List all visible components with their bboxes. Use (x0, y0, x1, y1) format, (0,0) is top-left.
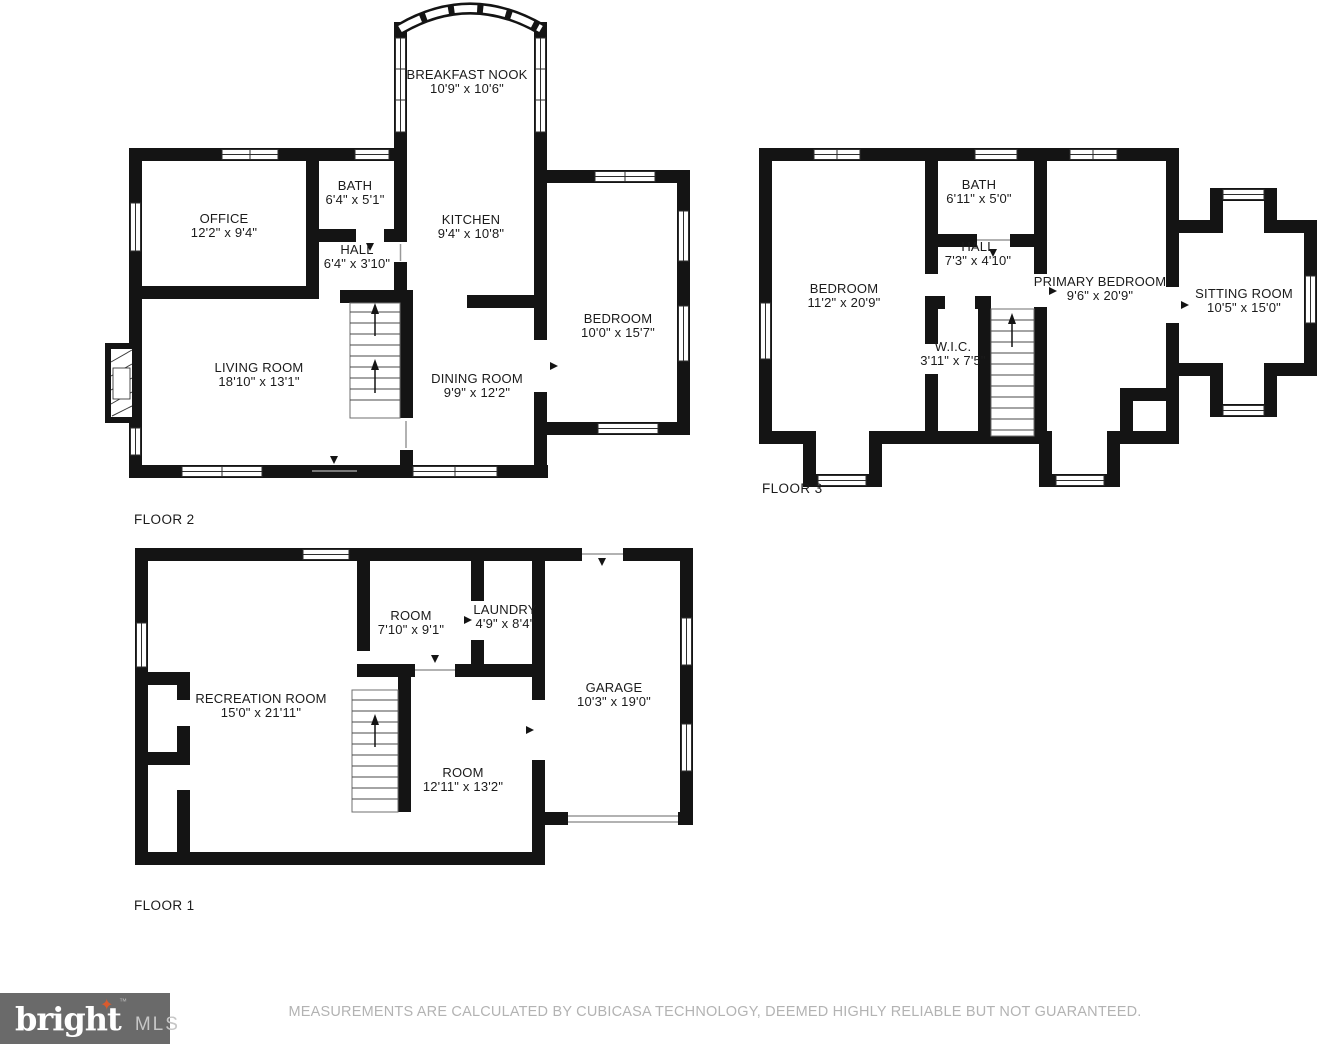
room-dims: 10'3" x 19'0" (577, 695, 651, 709)
room-name: KITCHEN (438, 213, 504, 227)
room-label-sitting-room: SITTING ROOM 10'5" x 15'0" (1195, 287, 1293, 314)
room-label-laundry: LAUNDRY 4'9" x 8'4" (473, 603, 536, 630)
room-label-bath-f2: BATH 6'4" x 5'1" (325, 179, 384, 206)
room-label-hall-f3: HALL 7'3" x 4'10" (945, 240, 1011, 267)
room-label-bath-f3: BATH 6'11" x 5'0" (946, 178, 1012, 205)
room-name: ROOM (378, 609, 444, 623)
floor1-stairs (352, 690, 398, 812)
room-name: RECREATION ROOM (195, 692, 326, 706)
room-name: BEDROOM (808, 282, 881, 296)
trademark-symbol: ™ (119, 997, 127, 1006)
room-dims: 9'9" x 12'2" (431, 386, 523, 400)
room-dims: 15'0" x 21'11" (195, 706, 326, 720)
floor2-stairs (350, 303, 400, 418)
room-dims: 12'11" x 13'2" (423, 780, 503, 794)
room-label-office: OFFICE 12'2" x 9'4" (191, 212, 257, 239)
floor3-stairs (991, 309, 1034, 436)
room-label-wic: W.I.C. 3'11" x 7'5" (920, 340, 986, 367)
room-name: DINING ROOM (431, 372, 523, 386)
room-label-bedroom-f2: BEDROOM 10'0" x 15'7" (581, 312, 655, 339)
room-label-kitchen: KITCHEN 9'4" x 10'8" (438, 213, 504, 240)
room-dims: 3'11" x 7'5" (920, 354, 986, 368)
floor2-caption: FLOOR 2 (134, 512, 195, 527)
room-label-living-room: LIVING ROOM 18'10" x 13'1" (215, 361, 304, 388)
room-label-room-lower: ROOM 12'11" x 13'2" (423, 766, 503, 793)
room-name: BATH (946, 178, 1012, 192)
room-dims: 6'11" x 5'0" (946, 192, 1012, 206)
brightmls-logo: bright ✦ ™ MLS (0, 993, 170, 1044)
floor2-door-openings (312, 243, 558, 471)
room-name: BEDROOM (581, 312, 655, 326)
room-dims: 9'6" x 20'9" (1034, 289, 1167, 303)
room-dims: 9'4" x 10'8" (438, 227, 504, 241)
room-name: BREAKFAST NOOK (406, 68, 527, 82)
room-name: ROOM (423, 766, 503, 780)
room-label-bedroom-f3: BEDROOM 11'2" x 20'9" (808, 282, 881, 309)
floor2-chimney-icon (105, 343, 138, 423)
room-label-garage: GARAGE 10'3" x 19'0" (577, 681, 651, 708)
room-name: HALL (945, 240, 1011, 254)
room-name: BATH (325, 179, 384, 193)
room-name: OFFICE (191, 212, 257, 226)
measurement-disclaimer: MEASUREMENTS ARE CALCULATED BY CUBICASA … (270, 1004, 1160, 1020)
floorplan-page: BREAKFAST NOOK 10'9" x 10'6" OFFICE 12'2… (0, 0, 1317, 1044)
room-dims: 4'9" x 8'4" (473, 617, 536, 631)
room-name: GARAGE (577, 681, 651, 695)
star-icon: ✦ (100, 998, 113, 1014)
room-name: LAUNDRY (473, 603, 536, 617)
room-dims: 6'4" x 5'1" (325, 193, 384, 207)
room-label-recreation-room: RECREATION ROOM 15'0" x 21'11" (195, 692, 326, 719)
room-dims: 7'3" x 4'10" (945, 254, 1011, 268)
floor1-caption: FLOOR 1 (134, 898, 195, 913)
room-label-breakfast-nook: BREAKFAST NOOK 10'9" x 10'6" (406, 68, 527, 95)
room-dims: 10'5" x 15'0" (1195, 301, 1293, 315)
room-name: SITTING ROOM (1195, 287, 1293, 301)
floorplan-drawing (0, 0, 1317, 1044)
room-label-room-upper: ROOM 7'10" x 9'1" (378, 609, 444, 636)
room-name: W.I.C. (920, 340, 986, 354)
room-dims: 18'10" x 13'1" (215, 375, 304, 389)
room-dims: 12'2" x 9'4" (191, 226, 257, 240)
room-name: HALL (324, 243, 390, 257)
floor3-caption: FLOOR 3 (762, 481, 823, 496)
room-dims: 10'9" x 10'6" (406, 82, 527, 96)
room-label-dining-room: DINING ROOM 9'9" x 12'2" (431, 372, 523, 399)
room-name: LIVING ROOM (215, 361, 304, 375)
room-label-hall-f2: HALL 6'4" x 3'10" (324, 243, 390, 270)
brand-suffix: MLS (135, 1014, 180, 1036)
floor1-windows (137, 550, 692, 772)
room-label-primary-bedroom: PRIMARY BEDROOM 9'6" x 20'9" (1034, 275, 1167, 302)
room-dims: 10'0" x 15'7" (581, 326, 655, 340)
room-name: PRIMARY BEDROOM (1034, 275, 1167, 289)
room-dims: 11'2" x 20'9" (808, 296, 881, 310)
room-dims: 6'4" x 3'10" (324, 257, 390, 271)
room-dims: 7'10" x 9'1" (378, 623, 444, 637)
